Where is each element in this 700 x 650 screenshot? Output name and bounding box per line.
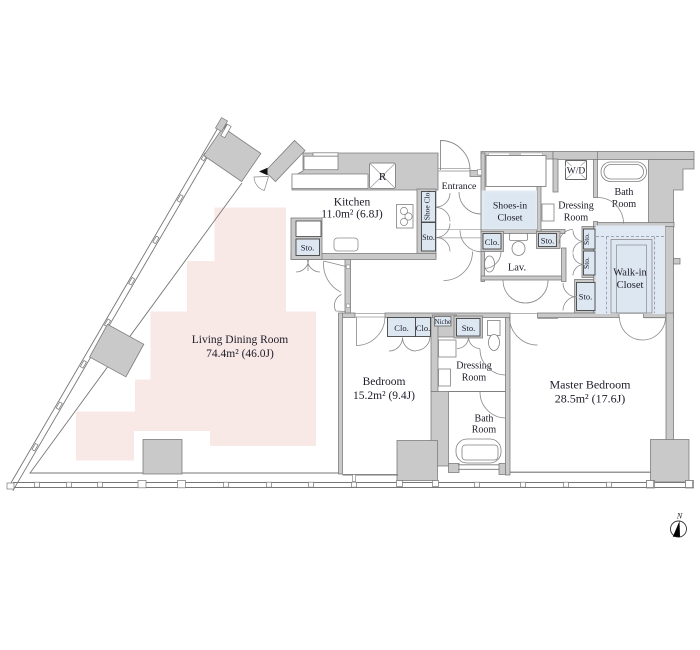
svg-text:Sto.: Sto.: [579, 292, 592, 302]
svg-text:Walk-in: Walk-in: [613, 268, 647, 279]
svg-text:Shoes-in: Shoes-in: [493, 201, 527, 212]
svg-text:N: N: [676, 512, 683, 521]
svg-text:Kitchen: Kitchen: [334, 197, 371, 209]
svg-text:Room: Room: [564, 213, 589, 224]
svg-text:Master Bedroom: Master Bedroom: [550, 378, 632, 392]
svg-text:Sto.: Sto.: [301, 243, 314, 253]
svg-text:R: R: [379, 171, 387, 183]
svg-text:Lav.: Lav.: [508, 263, 526, 274]
svg-text:Sto.: Sto.: [462, 323, 475, 333]
svg-text:11.0m² (6.8J): 11.0m² (6.8J): [321, 209, 383, 221]
svg-text:Room: Room: [472, 425, 497, 436]
svg-text:Sto.: Sto.: [582, 233, 591, 245]
svg-text:15.2m² (9.4J): 15.2m² (9.4J): [353, 390, 415, 402]
svg-text:Clo.: Clo.: [416, 323, 430, 333]
svg-text:Clo.: Clo.: [394, 323, 408, 333]
svg-text:Clo.: Clo.: [485, 237, 499, 247]
svg-text:Sto.: Sto.: [582, 257, 591, 269]
svg-text:Bath: Bath: [615, 187, 634, 198]
svg-text:Bath: Bath: [475, 414, 494, 425]
svg-text:Sto.: Sto.: [541, 236, 554, 246]
svg-text:Closet: Closet: [617, 280, 644, 291]
svg-text:W/D: W/D: [567, 167, 586, 177]
svg-text:Entrance: Entrance: [442, 181, 477, 192]
svg-text:Closet: Closet: [497, 213, 522, 224]
svg-text:Shoe Clo.: Shoe Clo.: [423, 191, 432, 221]
svg-text:Living Dining Room: Living Dining Room: [192, 334, 289, 346]
svg-text:28.5m² (17.6J): 28.5m² (17.6J): [555, 392, 626, 406]
svg-text:Room: Room: [462, 373, 487, 384]
svg-text:Sto.: Sto.: [422, 233, 435, 242]
svg-text:Niche: Niche: [434, 318, 451, 326]
svg-text:74.4m² (46.0J): 74.4m² (46.0J): [206, 348, 274, 360]
svg-text:Dressing: Dressing: [558, 201, 594, 212]
svg-text:Bedroom: Bedroom: [363, 376, 406, 388]
